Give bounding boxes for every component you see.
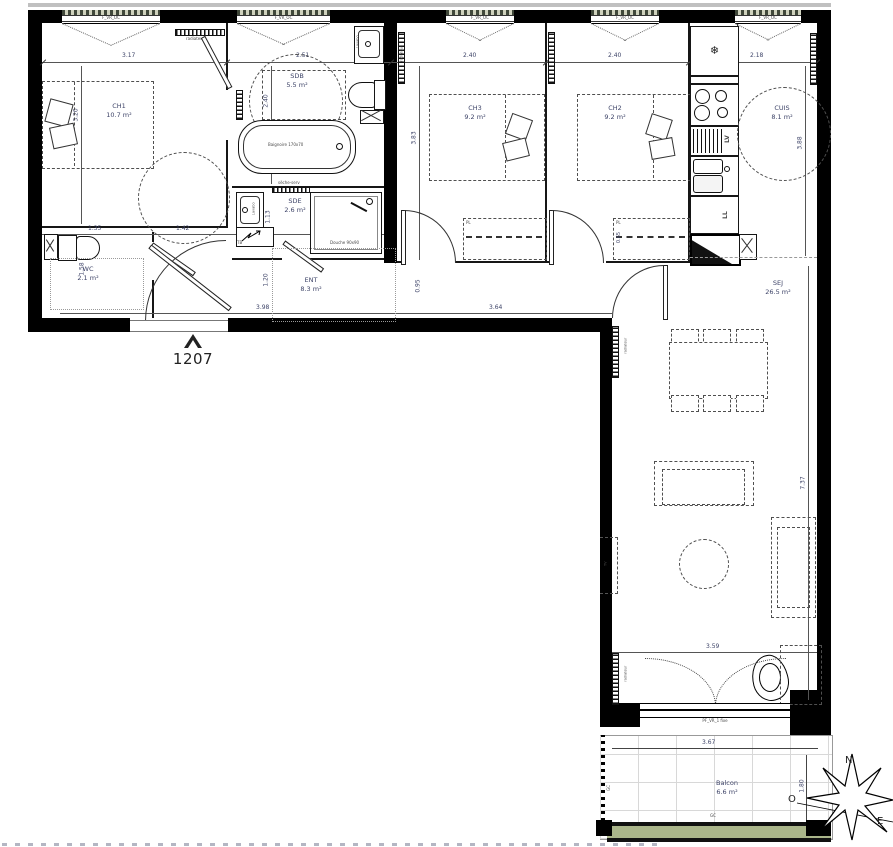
room-area: 6.6 m² [695,788,759,797]
dining-chair [703,395,731,412]
wall-segment [330,10,446,23]
bed-pillow-line [74,82,75,166]
room-label-balcon: Balcon 6.6 m² [695,779,759,797]
washing-machine-label: LL [723,211,729,219]
sink-basin [693,159,723,174]
door-arc-sej [612,265,664,318]
snowflake-icon: ❄ [710,44,719,57]
wall-segment [160,10,237,23]
sdb-clearance [262,70,346,120]
compass-west: O [788,794,796,805]
compass-rose [795,748,893,846]
entry-threshold [130,320,228,332]
window-label: PF_VR_1 fixe [642,719,788,723]
window: F_VR_OC [62,10,160,24]
wc-boundary [50,258,144,310]
dim-ch2-width: 2.40 [608,53,621,59]
coffee-table [679,539,729,589]
closet-rail [616,236,685,238]
tap-icon [724,166,730,172]
wall-left [28,10,42,332]
dim-wc-width: 1.35 [88,226,101,232]
french-door-swing [715,658,786,706]
washbasin-label: Lavabo [253,202,257,215]
tv-label: TV [605,561,609,566]
counter-divider [690,76,739,84]
compass-east: E [877,816,883,827]
toilet-tank [374,80,386,110]
closet-label: PL [616,221,621,225]
towel-radiator-label: sèche-serv [278,181,300,185]
french-door-swing [645,658,716,706]
dim-line [612,748,818,749]
window [640,703,790,718]
window-swing [767,23,802,41]
dim-cuis-width: 2.18 [750,53,763,59]
sideboard-inner [777,527,810,608]
fridge: ❄ [690,26,739,76]
exterior-ledge [28,3,831,7]
dim-sej-width: 3.59 [706,644,719,650]
railing-post [596,820,612,836]
door-arc-ch3 [404,210,456,263]
radiator-label: radiateur [400,46,404,62]
electrical-panel-label: TB [237,241,242,245]
window-label: F_VR_OC [62,15,160,22]
bathtub-label: Baignoire 170x70 [268,143,303,147]
dining-chair [671,395,699,412]
wall-bearing-sdb [384,23,397,263]
dim-ent-width: 3.98 [256,305,269,311]
window-swing [62,23,112,46]
window: F_VR_OC [735,10,801,24]
shower-head-icon [366,198,373,205]
glazing-line [640,709,790,711]
floor-plan: F_VR_OC F_VR_OC F_VR_OC F_VR_OC F_VR_OC … [0,0,893,847]
toilet-bowl [348,82,376,108]
window-swing [110,23,160,46]
lightning-bolt-icon [240,230,270,244]
dim-ch3-width: 2.40 [463,53,476,59]
unit-number: 1207 [158,350,228,368]
window-label: F_VR_OC [591,15,659,22]
kitchen-living-limit [690,257,817,258]
turning-circle [138,152,230,244]
radiator-label: radiateur [624,666,628,682]
dishwasher-label: LV [725,135,731,143]
towel-radiator [236,90,243,120]
towel-radiator [272,187,310,193]
ent-boundary [272,248,396,322]
dim-closet-depth: 0.65 [617,232,622,243]
closet [463,218,547,260]
window-swing [479,23,514,41]
radiator-label: radiateur [624,338,628,354]
shower-label: Douche 90x90 [330,241,359,245]
window-swing [624,23,659,41]
shutter-housing [780,645,822,705]
window-swing [591,23,626,41]
room-name: Balcon [695,779,759,788]
closet [613,218,690,260]
closet-label: PL [466,221,471,225]
washing-machine [690,196,739,234]
room-name: SEJ [748,279,808,288]
cropped-caption-strip [2,843,662,846]
radiator [612,326,619,378]
dining-table [669,342,768,399]
dining-chair [736,395,764,412]
burner-icon [694,105,710,121]
window-label: F_VR_OC [446,15,514,22]
room-area: 26.5 m² [748,288,808,297]
dim-hall-length: 3.64 [489,305,502,311]
drain-icon [336,143,343,150]
bed-pillow-line [505,95,506,178]
dim-hall-width: 0.95 [416,279,422,292]
window-swing [237,23,285,45]
dim-balcon-width: 3.67 [702,740,715,746]
window-swing [446,23,481,41]
radiator [810,33,817,85]
burner-icon [695,89,710,104]
room-label-sej: SEJ 26.5 m² [748,279,808,297]
wall-sej-left [600,318,612,710]
wall-sej-bottom-left [600,703,640,727]
closet-rail [466,236,542,238]
bed [577,94,691,181]
railing-label: GC [710,814,716,818]
window-swing [282,23,330,45]
radiator [548,32,555,84]
entry-marker-inner [188,340,198,348]
door-arc-ch2 [552,210,604,263]
burner-icon [715,90,727,102]
radiator [612,653,619,705]
window-label: F_VR_OC [735,15,801,22]
drain-icon [242,207,248,213]
partition [606,261,688,263]
window: F_VR_OC [237,10,330,24]
window: F_VR_OC [591,10,659,24]
turning-circle [737,87,831,181]
dim-line [808,266,809,700]
sofa-seat [662,469,745,505]
bed [429,94,545,181]
wall-bottom-west [28,318,130,332]
dim-ent-depth: 1.20 [264,273,270,286]
bathtub-inner [243,125,351,169]
drain-icon [365,41,371,47]
window-label: F_VR_OC [237,15,330,22]
toilet-bowl [76,236,100,260]
partition [455,261,552,263]
dim-sej-depth: 7.37 [801,476,807,489]
window: F_VR_OC [446,10,514,24]
compass-north: N [845,755,852,766]
radiator [175,29,225,36]
wall-segment [659,10,735,23]
dim-ch3-depth: 3.83 [412,131,418,144]
base-unit [690,234,741,266]
burner-icon [717,107,728,118]
dishwasher [690,126,739,156]
wall-segment [514,10,591,23]
washbasin-label: Lavabo [357,35,361,48]
dim-ch1-width: 3.17 [122,53,135,59]
sink-basin [693,175,723,193]
railing-label: GC [607,785,611,791]
window-swing [735,23,770,41]
